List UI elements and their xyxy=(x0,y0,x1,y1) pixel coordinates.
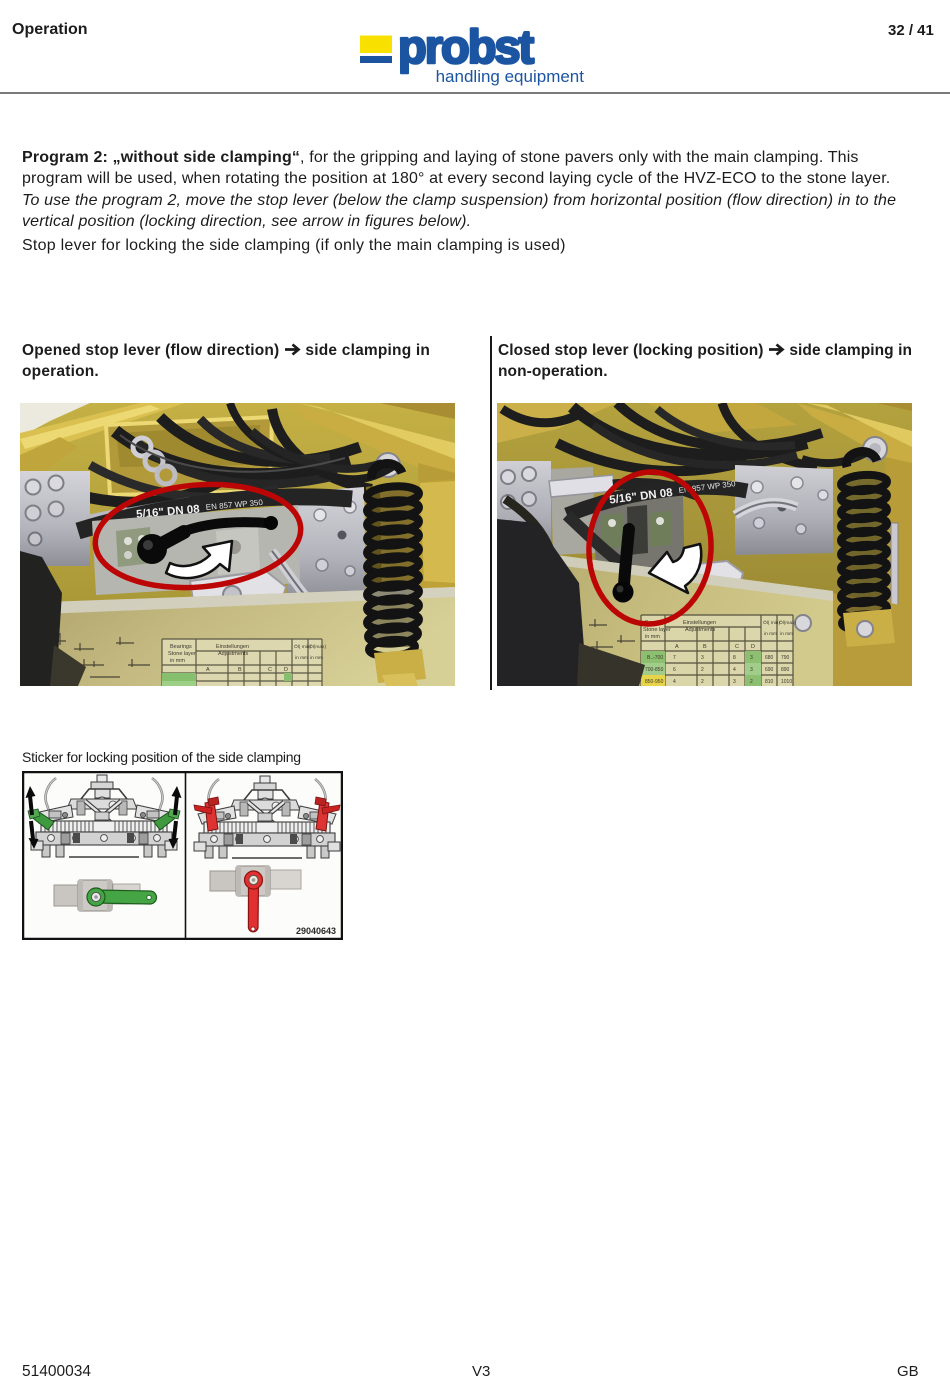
svg-text:700-850: 700-850 xyxy=(645,667,664,673)
svg-text:6: 6 xyxy=(673,667,676,673)
svg-text:Adjustments: Adjustments xyxy=(218,651,249,657)
svg-text:8: 8 xyxy=(733,655,736,661)
svg-text:2: 2 xyxy=(701,679,704,685)
svg-text:in mm: in mm xyxy=(764,631,777,637)
svg-text:B: B xyxy=(703,644,707,650)
svg-text:3: 3 xyxy=(750,655,753,661)
svg-text:Einstellungen: Einstellungen xyxy=(216,644,249,650)
svg-text:2: 2 xyxy=(701,667,704,673)
svg-text:in mm: in mm xyxy=(645,634,660,640)
svg-text:D: D xyxy=(284,667,288,673)
svg-text:B: B xyxy=(238,667,242,673)
svg-text:890: 890 xyxy=(781,667,790,673)
svg-text:Bearings: Bearings xyxy=(170,644,192,650)
svg-text:29040643: 29040643 xyxy=(296,926,336,936)
svg-text:Adjustments: Adjustments xyxy=(685,627,716,633)
svg-text:Öl(max): Öl(max) xyxy=(779,619,796,626)
svg-text:3: 3 xyxy=(733,679,736,685)
svg-text:Stone layer: Stone layer xyxy=(643,627,671,633)
svg-text:A: A xyxy=(206,667,210,673)
svg-text:7: 7 xyxy=(673,655,676,661)
svg-text:1010: 1010 xyxy=(781,679,792,685)
svg-text:C: C xyxy=(735,644,739,650)
svg-text:B..-700: B..-700 xyxy=(647,655,663,661)
svg-text:D: D xyxy=(751,644,755,650)
svg-text:790: 790 xyxy=(781,655,790,661)
svg-text:3: 3 xyxy=(750,667,753,673)
svg-text:handling equipment: handling equipment xyxy=(436,67,585,86)
svg-text:4: 4 xyxy=(733,667,736,673)
svg-text:Stone layer: Stone layer xyxy=(168,651,196,657)
svg-text:Öl( min): Öl( min) xyxy=(763,619,780,626)
svg-text:in mm: in mm xyxy=(310,655,323,661)
svg-text:A: A xyxy=(675,644,679,650)
svg-text:680: 680 xyxy=(765,655,774,661)
svg-text:850-950: 850-950 xyxy=(645,679,664,685)
svg-text:probst: probst xyxy=(398,20,535,73)
svg-text:in mm: in mm xyxy=(295,655,308,661)
svg-text:2: 2 xyxy=(750,679,753,685)
svg-text:Einstellungen: Einstellungen xyxy=(683,620,716,626)
svg-text:C: C xyxy=(268,667,272,673)
svg-text:in mm: in mm xyxy=(170,658,185,664)
svg-text:3: 3 xyxy=(701,655,704,661)
svg-text:690: 690 xyxy=(765,667,774,673)
svg-text:in mm: in mm xyxy=(780,631,793,637)
svg-text:Öl(max): Öl(max) xyxy=(309,643,326,650)
svg-text:4: 4 xyxy=(673,679,676,685)
svg-text:810: 810 xyxy=(765,679,774,685)
